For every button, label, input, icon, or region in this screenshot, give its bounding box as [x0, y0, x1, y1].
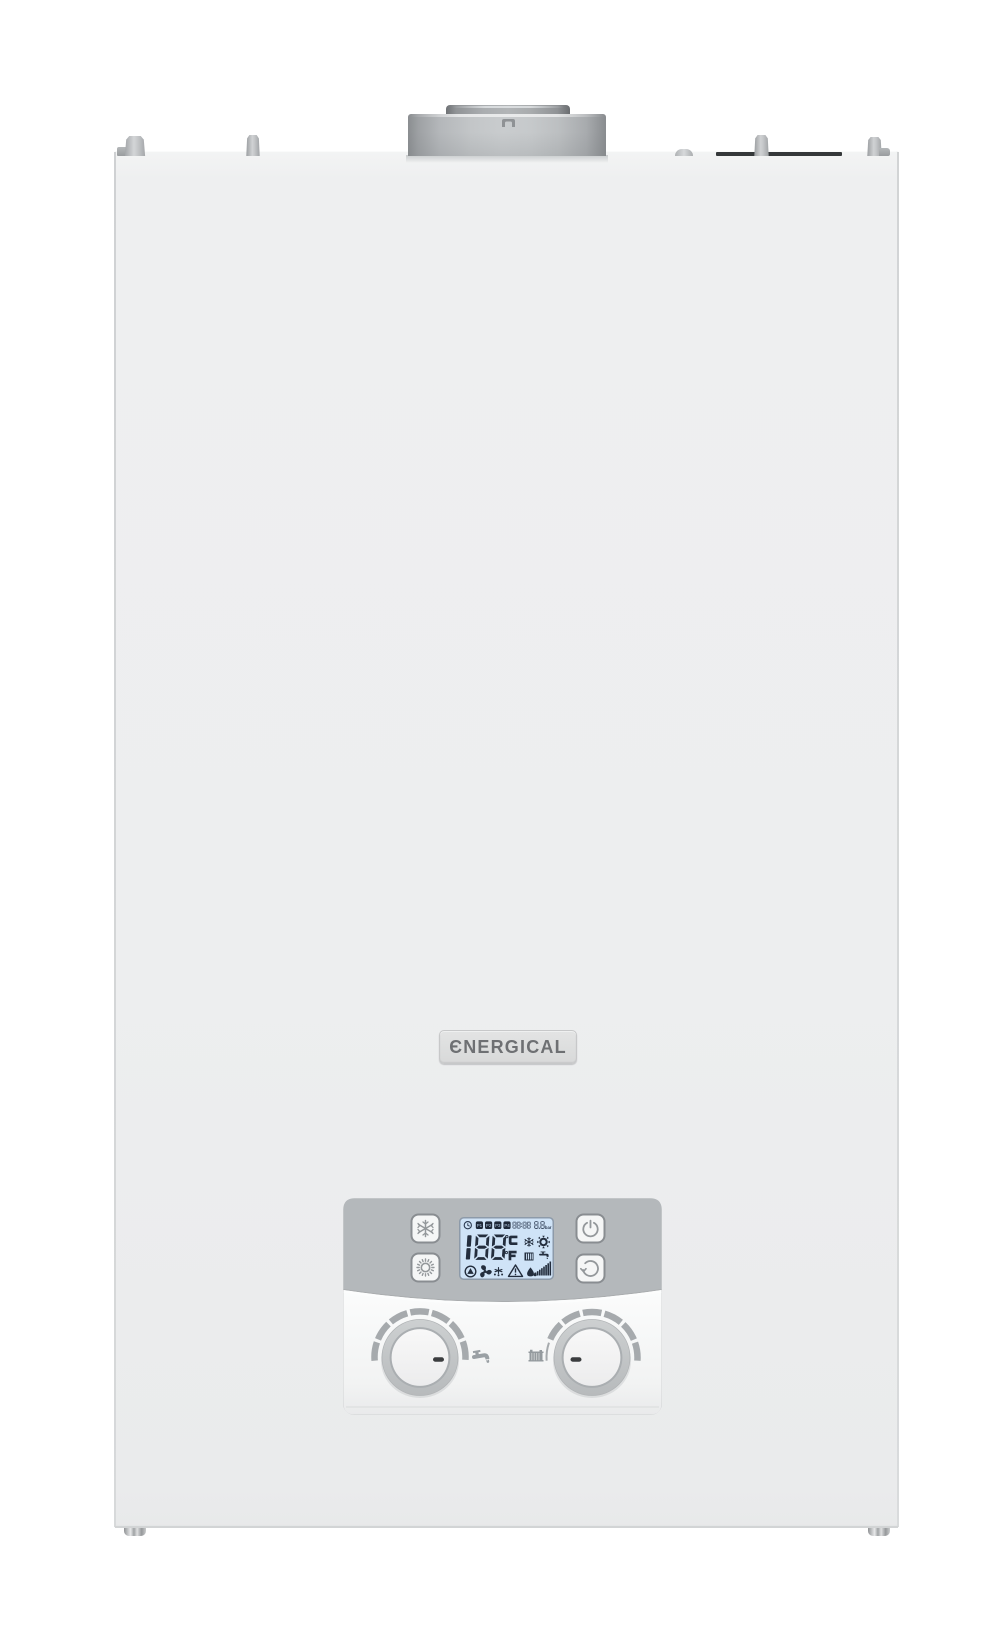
svg-text:P3: P3 [495, 1223, 501, 1228]
svg-text:bar: bar [545, 1225, 552, 1230]
svg-text:P2: P2 [486, 1223, 492, 1228]
svg-text:P4: P4 [504, 1223, 510, 1228]
svg-text:P1: P1 [477, 1223, 483, 1228]
